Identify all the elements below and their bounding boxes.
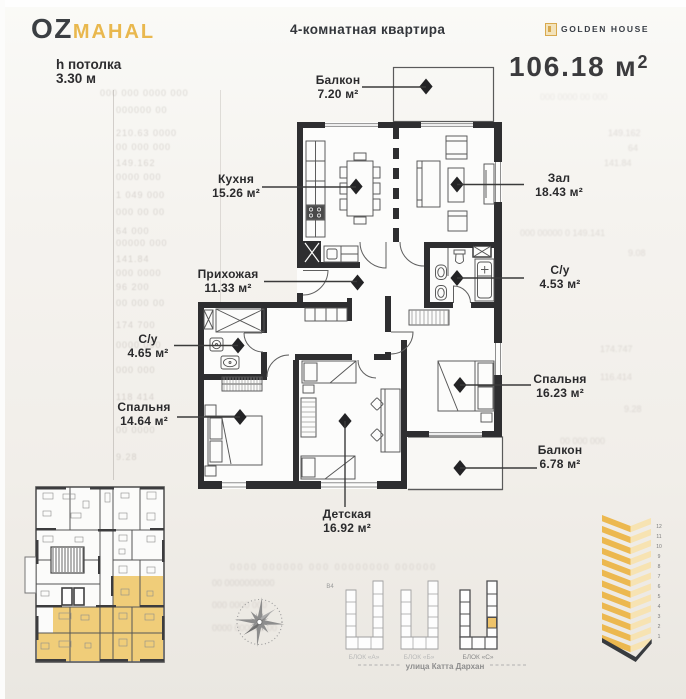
svg-text:5: 5 — [658, 594, 661, 600]
svg-text:7: 7 — [658, 574, 661, 580]
svg-text:4: 4 — [658, 604, 661, 610]
svg-text:11: 11 — [656, 534, 661, 540]
svg-text:8: 8 — [658, 564, 661, 570]
svg-text:12: 12 — [656, 524, 662, 530]
svg-text:БЛОК «А»: БЛОК «А» — [349, 654, 380, 661]
svg-text:1: 1 — [658, 634, 661, 640]
svg-text:улица Катта Дархан: улица Катта Дархан — [406, 662, 485, 671]
svg-text:БЛОК «Б»: БЛОК «Б» — [404, 654, 435, 661]
svg-text:В4: В4 — [326, 584, 334, 590]
svg-text:БЛОК «С»: БЛОК «С» — [462, 654, 493, 661]
svg-text:3: 3 — [658, 614, 661, 620]
svg-text:6: 6 — [658, 584, 661, 590]
svg-text:2: 2 — [658, 624, 661, 630]
svg-text:10: 10 — [656, 544, 662, 550]
svg-text:9: 9 — [658, 554, 661, 560]
